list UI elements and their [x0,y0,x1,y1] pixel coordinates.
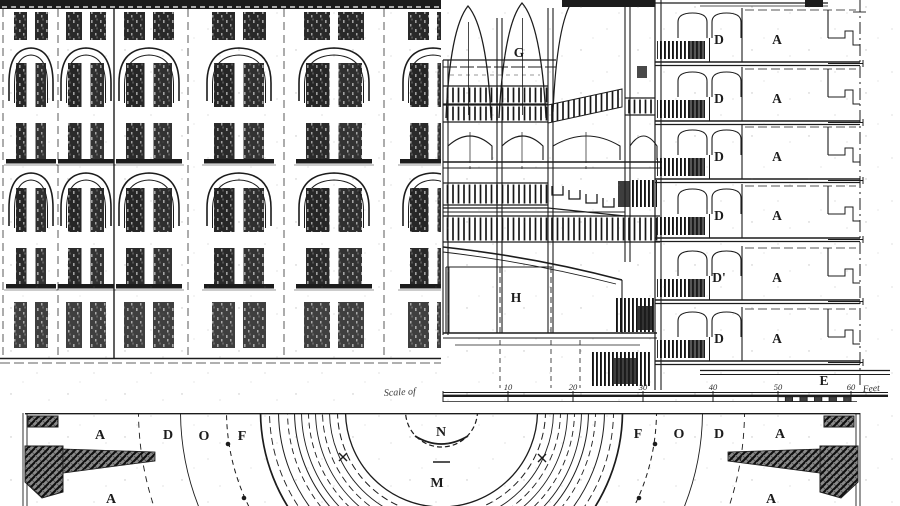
panopticon-engraving: G H E D A D A D A D A D' A D A Scale of … [0,0,900,506]
paper-grain-overlay [0,0,900,506]
engraving-canvas: G H E D A D A D A D A D' A D A Scale of … [0,0,900,506]
